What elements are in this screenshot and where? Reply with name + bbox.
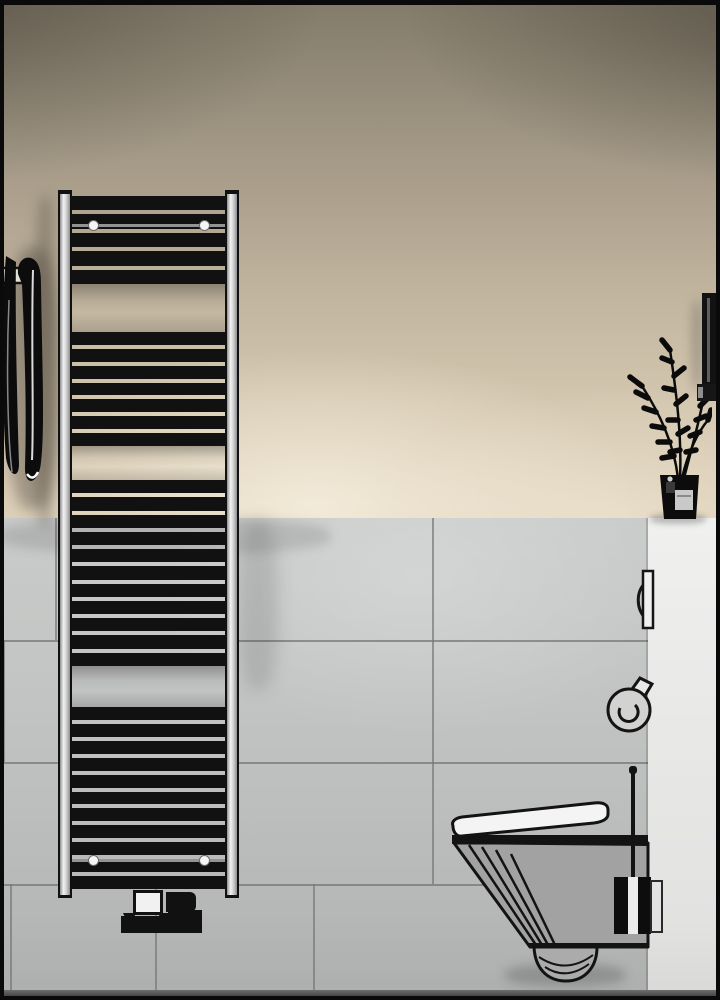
radiator-bar	[70, 515, 227, 528]
radiator-bar	[70, 876, 227, 889]
radiator-rail-left	[58, 190, 72, 898]
radiator-bar	[70, 233, 227, 247]
valve-body	[166, 892, 196, 912]
plant-pot-dot	[667, 476, 672, 481]
radiator-mount-dot	[199, 855, 210, 866]
radiator-bar	[70, 584, 227, 597]
radiator-rail-right	[225, 190, 239, 898]
image-frame-left	[0, 0, 4, 1000]
radiator-wall-gap	[70, 666, 227, 707]
tile-joint-vertical	[432, 518, 434, 884]
brush-holder-right	[638, 877, 651, 934]
brush-handle-knob	[629, 766, 637, 774]
radiator-bar	[70, 618, 227, 631]
valve-step-block	[168, 910, 202, 933]
valve-union	[133, 890, 163, 915]
towel-front-drape	[18, 258, 43, 481]
radiator-wall-gap	[70, 446, 227, 480]
radiator-bar	[70, 332, 227, 345]
paper-holder-knob	[598, 670, 662, 748]
radiator-wall-gap	[70, 284, 227, 332]
knob-ring	[608, 689, 650, 731]
radiator-bar	[70, 566, 227, 579]
radiator-bar	[70, 724, 227, 737]
radiator-bar	[70, 825, 227, 838]
radiator-bar	[70, 653, 227, 666]
toilet-lid	[453, 803, 608, 836]
image-frame-bottom	[0, 996, 720, 1000]
wall-bar-notch	[698, 387, 703, 398]
radiator-bar	[70, 549, 227, 562]
towel-back-drape	[3, 256, 19, 474]
image-frame-top	[0, 0, 720, 5]
radiator-bar	[70, 707, 227, 720]
wall-hung-toilet	[435, 758, 670, 990]
radiator-bar	[70, 270, 227, 284]
hanging-towel	[0, 240, 56, 496]
flush-plate-body	[643, 571, 653, 628]
plant-stems	[642, 350, 708, 478]
radiator-bar	[70, 480, 227, 493]
radiator-bar	[70, 775, 227, 788]
tile-joint-vertical	[10, 884, 12, 990]
towel-highlight	[32, 270, 33, 460]
radiator-mount-dot	[88, 855, 99, 866]
radiator-bar	[70, 366, 227, 379]
radiator-bar	[70, 399, 227, 412]
plant-pot-label	[675, 490, 693, 510]
radiator-bar	[70, 251, 227, 265]
image-frame-right	[716, 0, 720, 1000]
radiator-bar	[70, 601, 227, 614]
radiator-bar	[70, 433, 227, 446]
radiator-bar	[70, 196, 227, 210]
radiator-mount-dot	[199, 220, 210, 231]
plant-pot-tag	[666, 482, 675, 493]
radiator-bar	[70, 792, 227, 805]
radiator-bar	[70, 383, 227, 396]
towel-radiator	[58, 190, 239, 900]
potted-plant	[600, 332, 712, 522]
bathroom-product-render	[0, 0, 720, 1000]
wall-bar-highlight	[707, 298, 710, 382]
flush-plate	[624, 563, 658, 633]
radiator-bar	[70, 497, 227, 510]
brush-wall-bracket	[651, 881, 662, 932]
radiator-bar	[70, 842, 227, 855]
radiator-mount-dot	[88, 220, 99, 231]
brush-holder-highlight	[628, 877, 638, 934]
radiator-bar	[70, 741, 227, 754]
radiator-bar	[70, 349, 227, 362]
radiator-bar	[70, 635, 227, 648]
radiator-bar	[70, 758, 227, 771]
tile-joint-vertical	[313, 884, 315, 990]
radiator-bar	[70, 808, 227, 821]
radiator-bar	[70, 416, 227, 429]
radiator-bar	[70, 532, 227, 545]
